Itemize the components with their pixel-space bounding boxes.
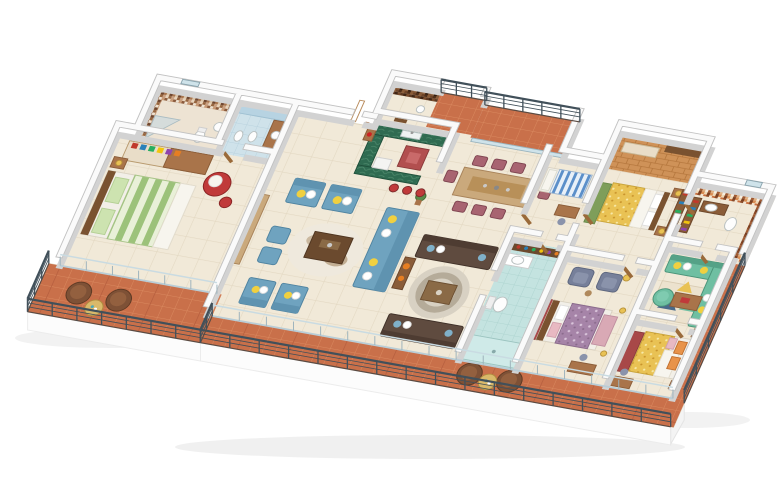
window-right-bath (745, 180, 762, 188)
floor-plan-svg (0, 0, 780, 490)
window-left-bath (181, 79, 200, 86)
floor-plan-canvas (0, 0, 780, 490)
